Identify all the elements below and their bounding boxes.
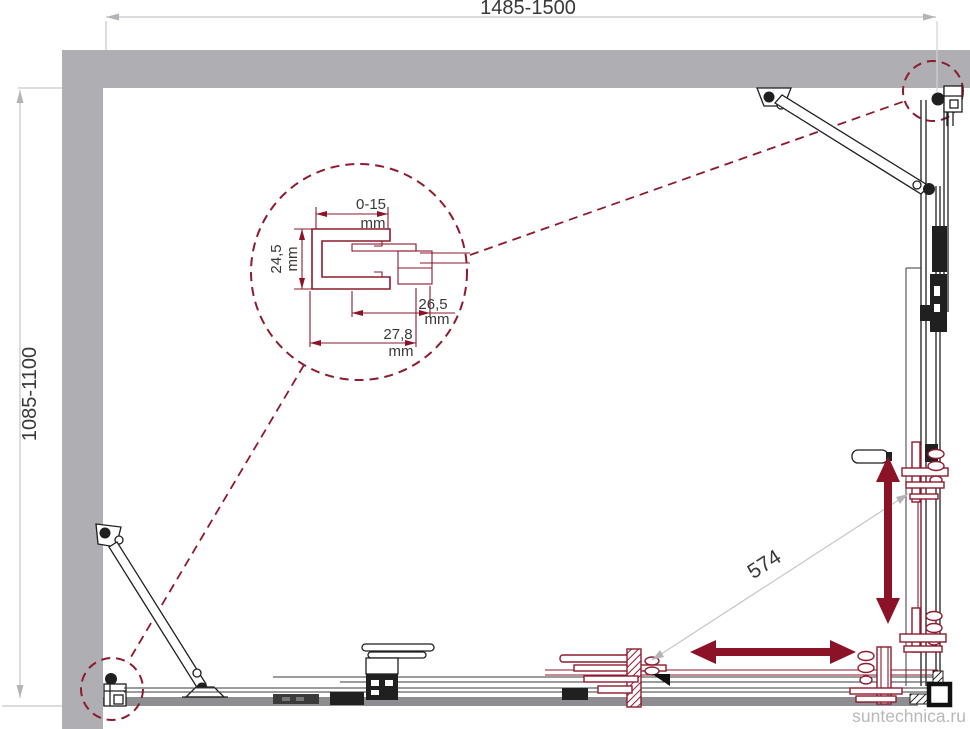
profile-cross-section: [312, 229, 470, 289]
vertical-double-arrow-icon: [876, 456, 900, 624]
height-dim-value: 24,5: [268, 244, 285, 273]
leader-line-top: [470, 101, 905, 255]
horizontal-double-arrow-icon: [690, 640, 856, 664]
depth-dimension-label: 1085-1100: [19, 347, 41, 441]
top-wall: [62, 50, 970, 88]
support-bar-end: [852, 450, 888, 463]
technical-diagram: 1485-1500 1085-1100 0-15: [0, 0, 970, 729]
adjuster-knob-icon: [932, 93, 945, 106]
door-cap: [560, 655, 638, 662]
left-wall: [62, 50, 103, 729]
top-right-wall-profile: [932, 86, 963, 126]
hinge-block-lower: [930, 274, 947, 332]
adjustment-arrows: [690, 456, 900, 664]
roller-cap: [362, 644, 434, 651]
bottom-support-strut: [96, 524, 228, 697]
rail-clamp: [330, 692, 364, 705]
gap-dim-value: 0-15: [356, 196, 386, 213]
roller-housing: [366, 658, 398, 674]
dimension-diagonal: 574: [652, 494, 908, 660]
adjuster-knob-icon: [105, 673, 117, 685]
height-dim-unit: mm: [284, 247, 301, 272]
shower-enclosure-drawing: 1485-1500 1085-1100 0-15: [0, 0, 970, 729]
arrow-downleft-icon: [652, 650, 664, 660]
outer-width-dim-unit: mm: [389, 343, 414, 360]
roller-body: [366, 674, 398, 700]
gap-dim-unit: mm: [361, 215, 386, 232]
detail-dimensions: 0-15 mm 24,5 mm 26,5 mm 27,8 mm: [268, 196, 455, 360]
diagonal-strut: [109, 542, 206, 689]
diagonal-strut: [775, 95, 929, 194]
dimension-depth: 1085-1100: [2, 88, 62, 706]
callouts: [81, 61, 963, 720]
arrow-down-icon: [17, 685, 24, 698]
arrow-right-icon: [923, 14, 936, 21]
watermark: suntechnica.ru: [852, 706, 966, 726]
inner-width-dim-unit: mm: [425, 311, 450, 328]
arrow-up-icon: [17, 90, 24, 103]
width-dimension-label: 1485-1500: [480, 0, 576, 19]
hinge-block-upper: [932, 226, 947, 272]
arrow-left-icon: [106, 14, 119, 21]
bracket-knob-icon: [100, 528, 111, 539]
top-support-strut: [757, 88, 935, 195]
bracket-knob-icon: [764, 92, 775, 103]
outer-width-dim-value: 27,8: [383, 326, 412, 343]
walls: [62, 50, 970, 729]
bottom-left-wall-profile: [104, 673, 126, 706]
floor-strip: [103, 697, 918, 706]
